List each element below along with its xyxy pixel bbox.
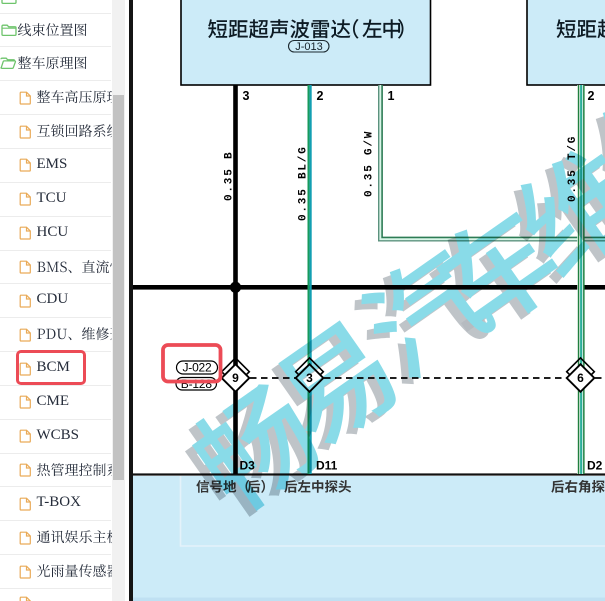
svg-text:B-128: B-128 (181, 377, 213, 391)
svg-text:9: 9 (232, 371, 239, 385)
svg-text:0.35 BL/G: 0.35 BL/G (298, 145, 310, 221)
svg-text:J-013: J-013 (295, 41, 323, 53)
svg-text:1: 1 (388, 89, 395, 103)
svg-text:2: 2 (317, 89, 324, 103)
svg-text:6: 6 (577, 371, 584, 385)
svg-text:2: 2 (588, 89, 595, 103)
svg-text:0.35 G/W: 0.35 G/W (364, 130, 376, 197)
svg-text:D2: D2 (587, 459, 603, 473)
svg-text:J-022: J-022 (182, 361, 212, 375)
svg-text:3: 3 (243, 89, 250, 103)
svg-text:0.35 B: 0.35 B (224, 151, 236, 201)
svg-text:D11: D11 (316, 459, 338, 473)
